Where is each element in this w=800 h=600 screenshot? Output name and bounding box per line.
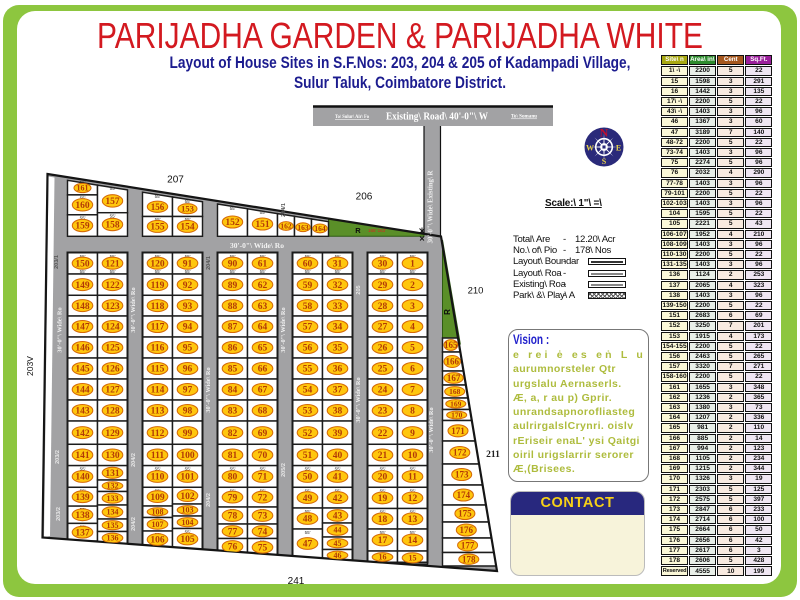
svg-text:38: 38 bbox=[333, 407, 343, 417]
svg-text:174: 174 bbox=[457, 490, 471, 500]
svg-text:101: 101 bbox=[180, 473, 195, 483]
svg-text:14: 14 bbox=[408, 536, 418, 546]
svg-text:104: 104 bbox=[182, 518, 194, 527]
svg-text:113: 113 bbox=[151, 407, 165, 417]
svg-text:89: 89 bbox=[228, 281, 238, 291]
svg-text:25: 25 bbox=[378, 365, 388, 375]
svg-text:60: 60 bbox=[303, 260, 313, 270]
svg-text:30'-0"\ Wide\ Existing\ R: 30'-0"\ Wide\ Existing\ R bbox=[428, 170, 435, 243]
svg-text:1: 1 bbox=[410, 260, 415, 270]
svg-text:120: 120 bbox=[150, 260, 165, 270]
svg-text:143: 143 bbox=[75, 407, 90, 417]
svg-text:55': 55' bbox=[110, 214, 116, 219]
svg-text:154: 154 bbox=[180, 223, 195, 233]
svg-text:203V: 203V bbox=[25, 356, 35, 376]
svg-text:75: 75 bbox=[258, 544, 268, 554]
svg-text:35: 35 bbox=[333, 344, 343, 354]
svg-text:54: 54 bbox=[303, 386, 313, 396]
svg-text:123: 123 bbox=[105, 302, 120, 312]
svg-text:3: 3 bbox=[410, 302, 415, 312]
svg-text:100: 100 bbox=[180, 451, 195, 461]
svg-text:108: 108 bbox=[152, 508, 164, 517]
svg-text:98: 98 bbox=[183, 407, 193, 417]
svg-text:2: 2 bbox=[410, 281, 415, 291]
svg-text:34: 34 bbox=[333, 323, 343, 333]
svg-text:59: 59 bbox=[303, 281, 313, 291]
svg-text:12: 12 bbox=[408, 494, 418, 504]
svg-text:92: 92 bbox=[183, 281, 193, 291]
svg-text:37: 37 bbox=[333, 386, 343, 396]
svg-text:R: R bbox=[443, 309, 452, 315]
svg-text:111: 111 bbox=[151, 451, 164, 461]
svg-text:E: E bbox=[616, 144, 621, 153]
svg-text:162: 162 bbox=[280, 222, 292, 231]
svg-text:65: 65 bbox=[258, 344, 268, 354]
svg-text:148: 148 bbox=[75, 302, 90, 312]
svg-text:210: 210 bbox=[468, 286, 484, 297]
svg-text:15: 15 bbox=[409, 554, 417, 563]
svg-text:135: 135 bbox=[107, 521, 119, 530]
svg-text:52: 52 bbox=[303, 429, 313, 439]
svg-text:204/2: 204/2 bbox=[206, 493, 212, 507]
svg-text:136: 136 bbox=[107, 534, 119, 543]
svg-text:169: 169 bbox=[450, 399, 462, 408]
svg-text:163: 163 bbox=[297, 223, 309, 232]
svg-text:114: 114 bbox=[151, 386, 165, 396]
svg-text:170: 170 bbox=[451, 411, 463, 420]
svg-text:63: 63 bbox=[258, 302, 268, 312]
svg-text:124: 124 bbox=[105, 323, 120, 333]
svg-text:22: 22 bbox=[378, 429, 388, 439]
svg-text:30'-0"\ Wide\ Ro: 30'-0"\ Wide\ Ro bbox=[205, 367, 212, 412]
svg-text:6: 6 bbox=[410, 365, 415, 375]
svg-text:87: 87 bbox=[228, 323, 238, 333]
svg-text:74: 74 bbox=[258, 528, 268, 538]
svg-text:204/1: 204/1 bbox=[281, 203, 287, 217]
svg-text:To\ Sulur\ Air\ Fo: To\ Sulur\ Air\ Fo bbox=[335, 114, 369, 120]
svg-text:27: 27 bbox=[378, 323, 388, 333]
svg-text:146: 146 bbox=[75, 344, 90, 354]
svg-text:158: 158 bbox=[105, 221, 120, 231]
svg-text:30'-0"\ Wide\ Ro: 30'-0"\ Wide\ Ro bbox=[280, 307, 287, 352]
svg-text:67: 67 bbox=[258, 386, 268, 396]
svg-text:33: 33 bbox=[333, 302, 343, 312]
svg-text:140: 140 bbox=[75, 473, 90, 483]
svg-text:161: 161 bbox=[77, 184, 89, 193]
svg-text:64: 64 bbox=[258, 323, 268, 333]
svg-text:83: 83 bbox=[228, 407, 238, 417]
svg-text:55': 55' bbox=[155, 194, 161, 199]
svg-text:29: 29 bbox=[378, 281, 388, 291]
svg-text:S: S bbox=[602, 157, 607, 166]
svg-text:To\ Somanu: To\ Somanu bbox=[511, 114, 537, 120]
svg-text:85: 85 bbox=[228, 365, 238, 375]
svg-text:13: 13 bbox=[408, 515, 418, 525]
svg-text:70: 70 bbox=[258, 451, 268, 461]
svg-text:130: 130 bbox=[105, 451, 120, 461]
svg-text:41: 41 bbox=[333, 473, 343, 483]
svg-text:106: 106 bbox=[150, 536, 165, 546]
svg-text:5: 5 bbox=[410, 344, 415, 354]
svg-text:57: 57 bbox=[303, 323, 313, 333]
svg-text:58: 58 bbox=[303, 302, 313, 312]
svg-text:93: 93 bbox=[183, 302, 193, 312]
svg-text:139: 139 bbox=[75, 493, 90, 503]
svg-text:30'-0"\ Wide\ Ro: 30'-0"\ Wide\ Ro bbox=[428, 407, 435, 452]
svg-text:109: 109 bbox=[150, 493, 165, 503]
svg-text:8: 8 bbox=[410, 407, 415, 417]
svg-text:205/2: 205/2 bbox=[281, 463, 287, 477]
svg-text:126: 126 bbox=[105, 365, 120, 375]
svg-text:61: 61 bbox=[258, 260, 268, 270]
svg-text:84: 84 bbox=[228, 386, 238, 396]
svg-text:178: 178 bbox=[462, 554, 476, 564]
svg-text:102: 102 bbox=[180, 492, 195, 502]
svg-text:241: 241 bbox=[288, 576, 305, 587]
svg-text:127: 127 bbox=[105, 386, 120, 396]
svg-text:164: 164 bbox=[314, 224, 326, 233]
svg-text:42: 42 bbox=[333, 494, 343, 504]
svg-text:68: 68 bbox=[258, 407, 268, 417]
svg-text:30'-0"\ Wide\ Ro: 30'-0"\ Wide\ Ro bbox=[57, 307, 64, 352]
svg-text:112: 112 bbox=[151, 429, 165, 439]
svg-text:55': 55' bbox=[110, 186, 116, 191]
svg-text:131: 131 bbox=[105, 469, 120, 479]
svg-text:49: 49 bbox=[303, 494, 313, 504]
svg-text:43: 43 bbox=[333, 512, 343, 522]
svg-text:150: 150 bbox=[75, 260, 90, 270]
svg-text:17: 17 bbox=[378, 536, 388, 546]
svg-text:134: 134 bbox=[107, 508, 119, 517]
svg-text:99: 99 bbox=[183, 429, 193, 439]
svg-text:51: 51 bbox=[303, 451, 313, 461]
svg-text:203/1: 203/1 bbox=[54, 255, 60, 269]
svg-text:44: 44 bbox=[334, 526, 342, 535]
svg-text:55': 55' bbox=[230, 206, 236, 211]
svg-text:171: 171 bbox=[451, 426, 465, 436]
svg-text:116: 116 bbox=[151, 344, 165, 354]
svg-text:72: 72 bbox=[258, 493, 268, 503]
svg-text:128: 128 bbox=[105, 407, 120, 417]
svg-text:40: 40 bbox=[333, 451, 343, 461]
svg-text:138: 138 bbox=[75, 511, 90, 521]
svg-text:203/2: 203/2 bbox=[56, 507, 62, 521]
svg-text:91: 91 bbox=[183, 260, 193, 270]
svg-text:132: 132 bbox=[107, 482, 119, 491]
svg-text:155: 155 bbox=[150, 223, 165, 233]
svg-text:119: 119 bbox=[151, 281, 165, 291]
svg-text:20: 20 bbox=[378, 473, 388, 483]
svg-text:173: 173 bbox=[455, 470, 469, 480]
svg-text:107: 107 bbox=[152, 520, 164, 529]
svg-text:103: 103 bbox=[182, 506, 194, 515]
svg-text:26: 26 bbox=[378, 344, 388, 354]
svg-text:105: 105 bbox=[180, 535, 195, 545]
svg-text:71: 71 bbox=[258, 473, 268, 483]
svg-text:118: 118 bbox=[151, 302, 165, 312]
svg-text:9: 9 bbox=[410, 429, 415, 439]
svg-text:53: 53 bbox=[303, 407, 313, 417]
svg-text:90: 90 bbox=[228, 260, 238, 270]
svg-text:W: W bbox=[586, 144, 594, 153]
svg-text:21: 21 bbox=[378, 451, 388, 461]
svg-text:95: 95 bbox=[183, 344, 193, 354]
svg-text:80: 80 bbox=[228, 473, 238, 483]
svg-text:30'-0"\ Wide\ Ro: 30'-0"\ Wide\ Ro bbox=[355, 377, 362, 422]
svg-text:76: 76 bbox=[228, 543, 238, 553]
svg-text:160: 160 bbox=[75, 201, 90, 211]
svg-text:207: 207 bbox=[167, 175, 184, 186]
svg-text:39: 39 bbox=[333, 429, 343, 439]
svg-text:23: 23 bbox=[378, 407, 388, 417]
svg-text:175: 175 bbox=[458, 509, 472, 519]
svg-text:168: 168 bbox=[449, 387, 461, 396]
svg-text:117: 117 bbox=[151, 323, 165, 333]
svg-text:30'-0"\ Wide\ Ro: 30'-0"\ Wide\ Ro bbox=[230, 241, 284, 250]
svg-text:206: 206 bbox=[356, 192, 373, 203]
svg-text:18: 18 bbox=[378, 515, 388, 525]
svg-text:50: 50 bbox=[303, 473, 313, 483]
svg-text:86: 86 bbox=[228, 344, 238, 354]
svg-text:77: 77 bbox=[228, 528, 238, 538]
svg-text:66: 66 bbox=[258, 365, 268, 375]
svg-text:115: 115 bbox=[151, 365, 165, 375]
svg-text:149: 149 bbox=[75, 281, 90, 291]
svg-text:45: 45 bbox=[334, 539, 342, 548]
svg-text:81: 81 bbox=[228, 451, 238, 461]
svg-text:19: 19 bbox=[378, 494, 388, 504]
svg-text:121: 121 bbox=[105, 260, 120, 270]
svg-text:137: 137 bbox=[75, 528, 90, 538]
svg-text:172: 172 bbox=[453, 448, 467, 458]
svg-text:N: N bbox=[600, 126, 609, 140]
svg-text:69: 69 bbox=[258, 429, 268, 439]
svg-text:28: 28 bbox=[378, 302, 388, 312]
svg-text:73: 73 bbox=[258, 512, 268, 522]
svg-text:205: 205 bbox=[356, 285, 362, 294]
svg-text:30'-0"\ Wide\ Ro: 30'-0"\ Wide\ Ro bbox=[130, 287, 137, 332]
svg-text:31: 31 bbox=[333, 260, 343, 270]
svg-text:96: 96 bbox=[183, 365, 193, 375]
svg-text:166: 166 bbox=[445, 357, 459, 367]
svg-text:204/2: 204/2 bbox=[131, 517, 137, 531]
svg-text:203/2: 203/2 bbox=[55, 450, 61, 464]
svg-text:153: 153 bbox=[181, 204, 194, 214]
svg-text:48: 48 bbox=[303, 515, 313, 525]
svg-text:94: 94 bbox=[183, 323, 193, 333]
svg-text:144: 144 bbox=[75, 386, 90, 396]
svg-text:165: 165 bbox=[444, 340, 458, 350]
svg-text:47: 47 bbox=[303, 540, 313, 550]
svg-text:32: 32 bbox=[333, 281, 343, 291]
svg-text:133: 133 bbox=[107, 494, 119, 503]
svg-text:211: 211 bbox=[486, 450, 500, 460]
svg-text:165' 163': 165' 163' bbox=[368, 228, 386, 233]
svg-text:152: 152 bbox=[225, 218, 240, 228]
svg-text:4: 4 bbox=[410, 323, 415, 333]
svg-text:36: 36 bbox=[333, 365, 343, 375]
svg-text:142: 142 bbox=[75, 429, 90, 439]
svg-text:204/2: 204/2 bbox=[131, 453, 137, 467]
svg-text:204/1: 204/1 bbox=[206, 256, 212, 270]
svg-text:157: 157 bbox=[105, 197, 120, 207]
svg-text:88: 88 bbox=[228, 302, 238, 312]
svg-text:16: 16 bbox=[379, 553, 387, 562]
svg-text:129: 129 bbox=[105, 429, 120, 439]
svg-text:55: 55 bbox=[303, 365, 313, 375]
svg-text:176: 176 bbox=[460, 525, 474, 535]
svg-text:62: 62 bbox=[258, 281, 268, 291]
svg-text:82: 82 bbox=[228, 429, 238, 439]
svg-text:78: 78 bbox=[228, 512, 238, 522]
svg-text:46: 46 bbox=[334, 551, 342, 560]
svg-text:56: 56 bbox=[303, 344, 313, 354]
svg-text:55': 55' bbox=[305, 530, 311, 535]
svg-text:24: 24 bbox=[378, 386, 388, 396]
svg-text:122: 122 bbox=[105, 281, 120, 291]
svg-text:145: 145 bbox=[75, 365, 90, 375]
svg-text:110: 110 bbox=[151, 473, 165, 483]
svg-text:R: R bbox=[355, 226, 361, 235]
svg-text:55': 55' bbox=[260, 210, 266, 215]
svg-text:159: 159 bbox=[75, 222, 90, 232]
svg-text:177: 177 bbox=[461, 540, 475, 550]
svg-text:147: 147 bbox=[75, 323, 90, 333]
svg-text:141: 141 bbox=[75, 451, 90, 461]
svg-text:11: 11 bbox=[408, 473, 417, 483]
svg-text:125: 125 bbox=[105, 344, 120, 354]
svg-text:10: 10 bbox=[408, 451, 418, 461]
svg-text:79: 79 bbox=[228, 493, 238, 503]
svg-text:156: 156 bbox=[151, 202, 165, 212]
svg-text:7: 7 bbox=[410, 386, 415, 396]
svg-text:Existing\ Road\ 40'-0"\ W: Existing\ Road\ 40'-0"\ W bbox=[386, 112, 488, 123]
svg-text:167: 167 bbox=[447, 373, 461, 383]
svg-text:97: 97 bbox=[183, 386, 193, 396]
svg-text:151: 151 bbox=[255, 220, 270, 230]
svg-text:30: 30 bbox=[378, 260, 388, 270]
